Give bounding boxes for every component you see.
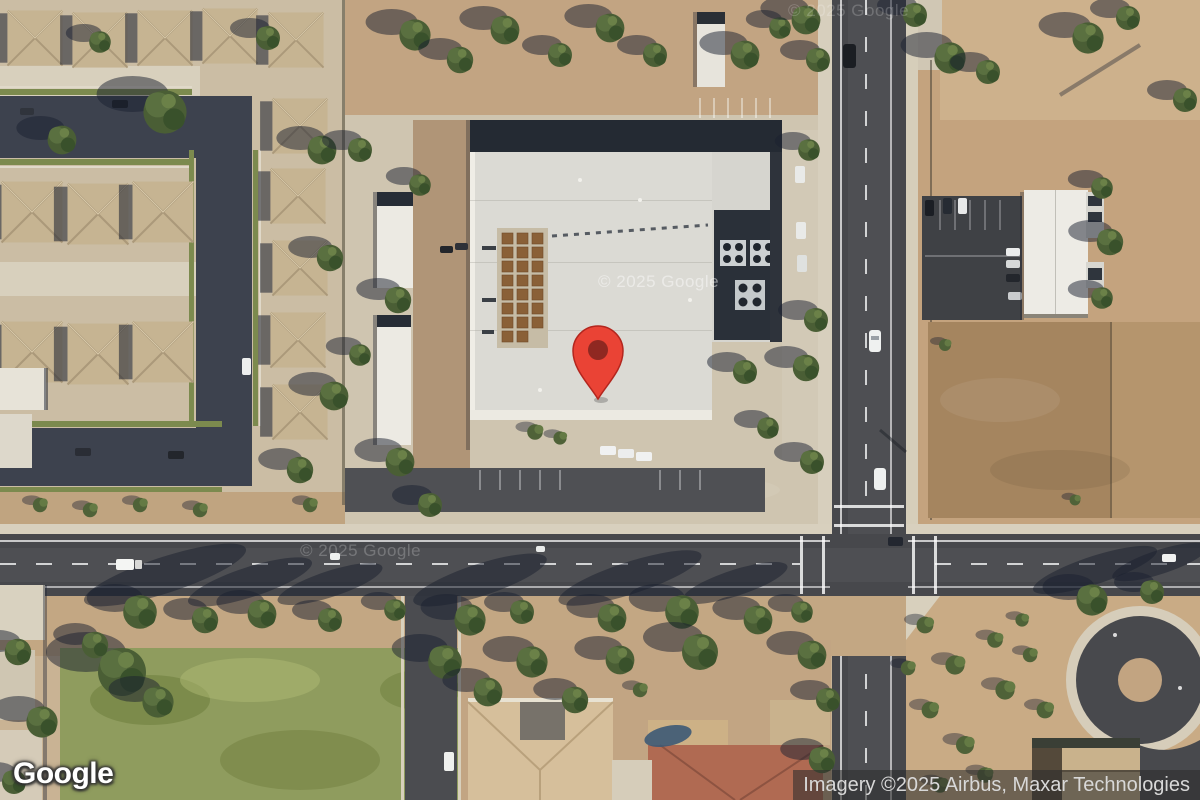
satellite-imagery[interactable] — [0, 0, 1200, 800]
map-viewport[interactable]: © 2025 Google © 2025 Google © 2025 Googl… — [0, 0, 1200, 800]
imagery-attribution: Imagery ©2025 Airbus, Maxar Technologies — [793, 770, 1200, 800]
google-logo[interactable]: Google — [13, 757, 113, 791]
